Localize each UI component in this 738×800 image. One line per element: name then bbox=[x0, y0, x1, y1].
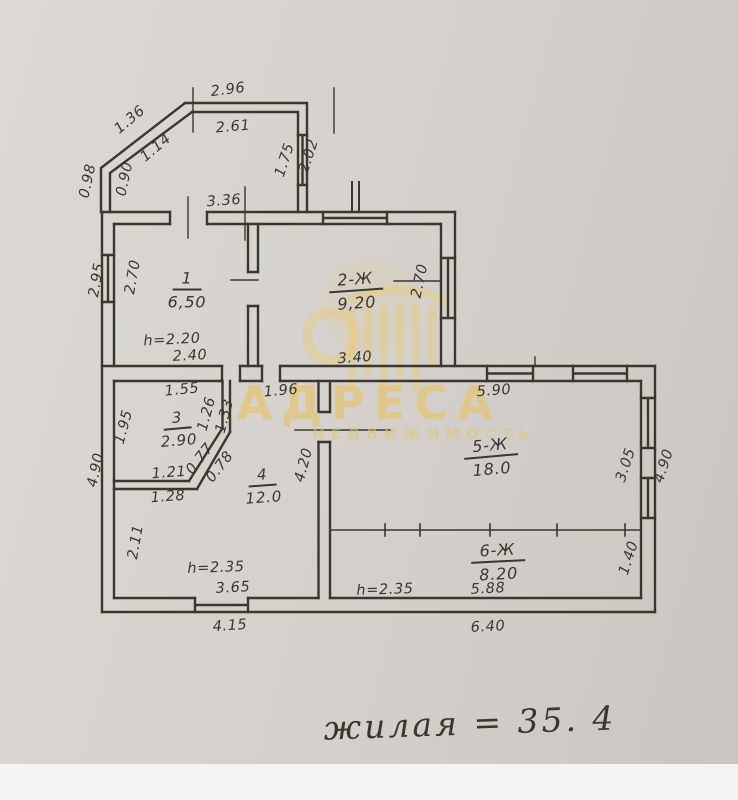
bottom-window bbox=[195, 598, 248, 612]
right-windows bbox=[641, 398, 655, 518]
dim-room1-bottom: 2.40 bbox=[172, 347, 207, 365]
room-label-3: 3 2.90 bbox=[158, 407, 198, 451]
dim-room4-bottom-outer: 4.15 bbox=[212, 617, 248, 635]
dim-room3-bottom-inner: 1.21 bbox=[151, 464, 187, 482]
room2-right-window bbox=[441, 258, 455, 318]
dim-room4-bottom-inner: 3.65 bbox=[215, 579, 250, 597]
dim-room6-height: h=2.35 bbox=[356, 581, 414, 599]
room-label-2: 2-Ж 9,20 bbox=[328, 268, 384, 315]
top-window bbox=[323, 212, 387, 224]
dim-porch-bottom: 3.36 bbox=[206, 192, 242, 210]
dim-room2-bottom: 3.40 bbox=[337, 349, 373, 367]
partition-5-6 bbox=[331, 524, 641, 536]
room-area: 18.0 bbox=[472, 456, 513, 480]
dim-room6-bottom-inner: 5.88 bbox=[470, 580, 505, 598]
room-number: 3 bbox=[162, 407, 192, 430]
room-label-6: 6-Ж 8.20 bbox=[470, 539, 526, 585]
room-number: 4 bbox=[247, 465, 277, 488]
room-label-5: 5-Ж 18.0 bbox=[462, 433, 519, 481]
paper-edge bbox=[0, 764, 738, 800]
room-label-1: 1 6,50 bbox=[168, 269, 207, 312]
dim-hall-top: 1.96 bbox=[263, 382, 299, 401]
dim-room6-bottom-outer: 6.40 bbox=[470, 618, 505, 636]
dim-room5-top: 5.90 bbox=[476, 382, 512, 400]
room5-top-windows bbox=[487, 366, 627, 381]
room-number: 6-Ж bbox=[470, 539, 525, 564]
room-area: 9,20 bbox=[337, 290, 377, 314]
room-number: 1 bbox=[173, 269, 202, 291]
room-area: 2.90 bbox=[160, 428, 198, 451]
room-label-4: 4 12.0 bbox=[243, 464, 282, 507]
room-area: 6,50 bbox=[168, 291, 207, 312]
room-area: 12.0 bbox=[245, 485, 283, 508]
chimney-stub bbox=[352, 182, 359, 211]
scanned-floorplan-photo: АДРЕСА НЕДВИЖИМОСТЬ 1 6,50 2-Ж 9,20 3 2.… bbox=[0, 0, 738, 800]
dim-room1-height: h=2.20 bbox=[143, 331, 201, 350]
dim-porch-top-inner: 2.61 bbox=[215, 118, 251, 137]
dim-room4-height: h=2.35 bbox=[187, 559, 245, 577]
dim-room3-bottom-outer: 1.28 bbox=[150, 488, 186, 506]
